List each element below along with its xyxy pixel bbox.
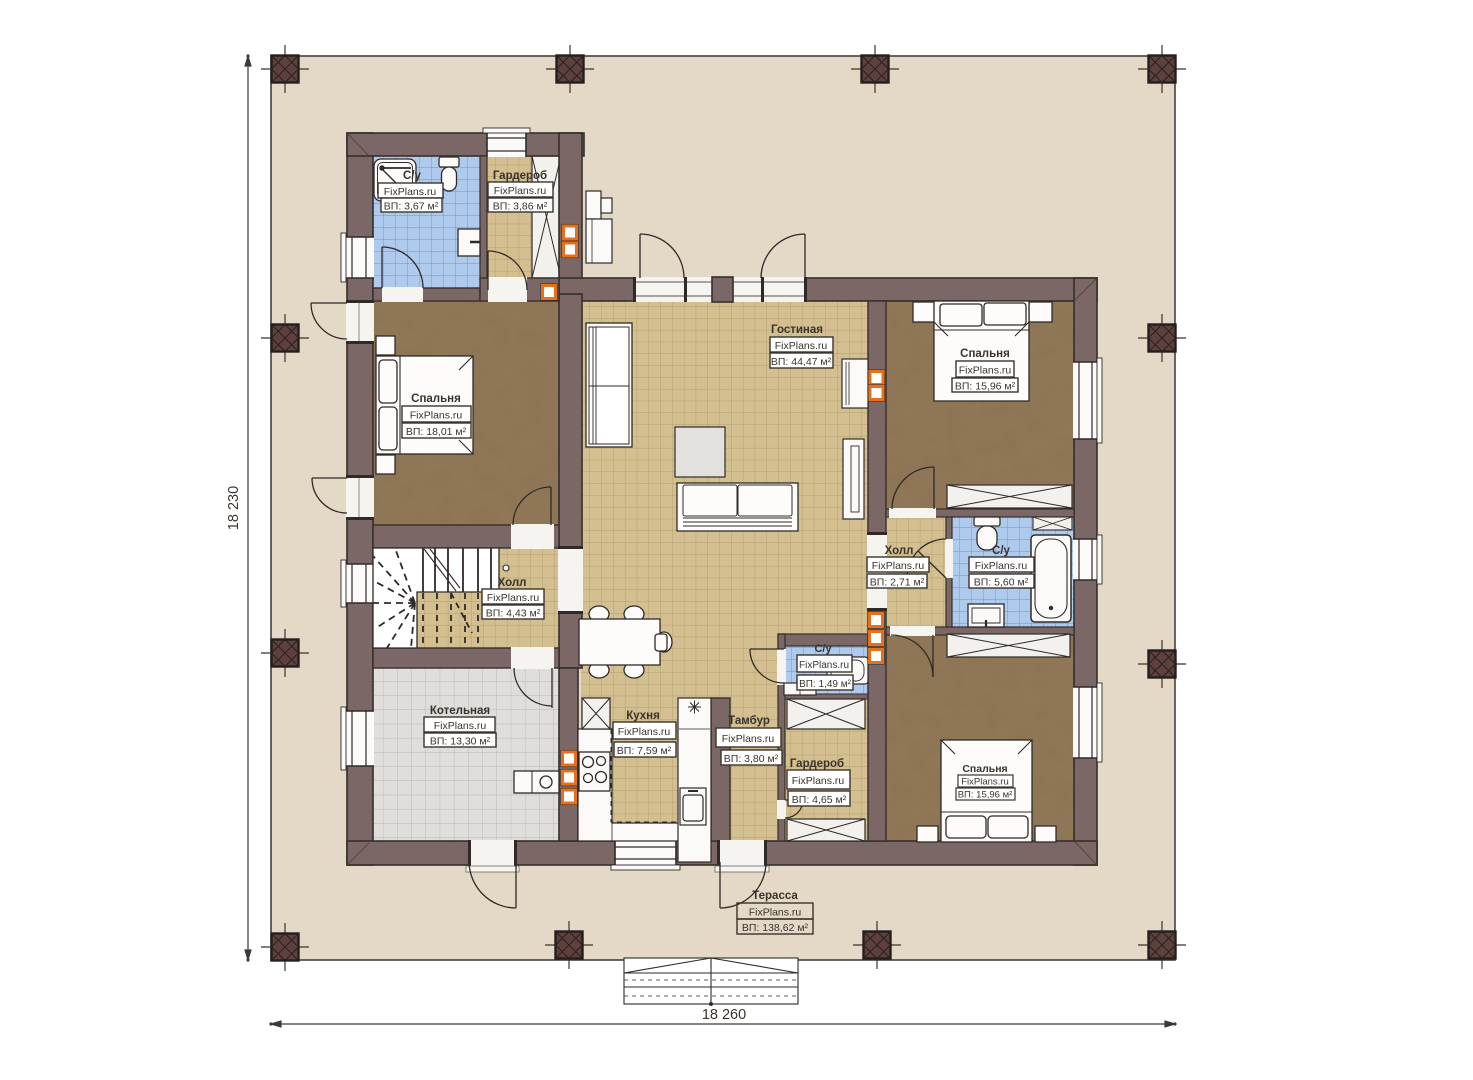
svg-text:Холл: Холл (498, 577, 527, 589)
svg-text:Спальня: Спальня (962, 763, 1007, 775)
svg-text:FixPlans.ru: FixPlans.ru (384, 186, 437, 198)
svg-text:FixPlans.ru: FixPlans.ru (494, 185, 547, 197)
svg-text:ВП: 7,59 м²: ВП: 7,59 м² (617, 745, 672, 757)
svg-text:FixPlans.ru: FixPlans.ru (487, 592, 540, 604)
svg-text:FixPlans.ru: FixPlans.ru (434, 720, 487, 732)
svg-text:18 260: 18 260 (702, 1007, 746, 1023)
svg-text:С/у: С/у (814, 643, 832, 655)
svg-text:FixPlans.ru: FixPlans.ru (410, 410, 463, 422)
svg-text:18 230: 18 230 (226, 486, 242, 530)
svg-text:Холл: Холл (885, 545, 914, 557)
svg-text:FixPlans.ru: FixPlans.ru (872, 560, 925, 572)
svg-text:ВП: 3,86 м²: ВП: 3,86 м² (493, 201, 548, 213)
svg-text:ВП: 1,49 м²: ВП: 1,49 м² (799, 679, 852, 690)
svg-text:FixPlans.ru: FixPlans.ru (749, 907, 802, 919)
svg-text:ВП: 138,62 м²: ВП: 138,62 м² (742, 922, 809, 934)
svg-text:FixPlans.ru: FixPlans.ru (775, 340, 828, 352)
svg-text:Гардероб: Гардероб (493, 170, 547, 182)
svg-text:ВП: 44,47 м²: ВП: 44,47 м² (771, 356, 832, 368)
svg-text:FixPlans.ru: FixPlans.ru (618, 726, 671, 738)
svg-text:Кухня: Кухня (626, 710, 660, 722)
svg-text:FixPlans.ru: FixPlans.ru (961, 777, 1009, 788)
svg-text:ВП: 3,80 м²: ВП: 3,80 м² (724, 753, 779, 765)
svg-text:FixPlans.ru: FixPlans.ru (959, 365, 1012, 377)
svg-text:ВП: 4,43 м²: ВП: 4,43 м² (486, 608, 541, 620)
svg-text:ВП: 15,96 м²: ВП: 15,96 м² (958, 790, 1013, 801)
svg-text:ВП: 2,71 м²: ВП: 2,71 м² (870, 577, 925, 589)
svg-text:Спальня: Спальня (960, 348, 1010, 360)
svg-text:ВП: 4,65 м²: ВП: 4,65 м² (792, 794, 847, 806)
svg-text:С/у: С/у (992, 545, 1011, 557)
svg-text:ВП: 18,01 м²: ВП: 18,01 м² (406, 426, 467, 438)
svg-text:FixPlans.ru: FixPlans.ru (722, 733, 775, 745)
svg-text:ВП: 13,30 м²: ВП: 13,30 м² (430, 736, 491, 748)
svg-text:Гардероб: Гардероб (790, 758, 844, 770)
svg-text:Спальня: Спальня (411, 393, 461, 405)
svg-text:Тамбур: Тамбур (728, 715, 770, 727)
svg-text:С/у: С/у (403, 170, 422, 182)
svg-text:FixPlans.ru: FixPlans.ru (975, 560, 1028, 572)
svg-text:Терасса: Терасса (752, 890, 798, 902)
svg-text:FixPlans.ru: FixPlans.ru (799, 660, 849, 671)
svg-text:ВП: 3,67 м²: ВП: 3,67 м² (384, 201, 439, 213)
svg-text:Гостиная: Гостиная (771, 324, 823, 336)
svg-text:FixPlans.ru: FixPlans.ru (792, 775, 845, 787)
svg-text:Котельная: Котельная (430, 705, 490, 717)
svg-text:ВП: 15,96 м²: ВП: 15,96 м² (955, 381, 1016, 393)
svg-text:ВП: 5,60 м²: ВП: 5,60 м² (974, 577, 1029, 589)
